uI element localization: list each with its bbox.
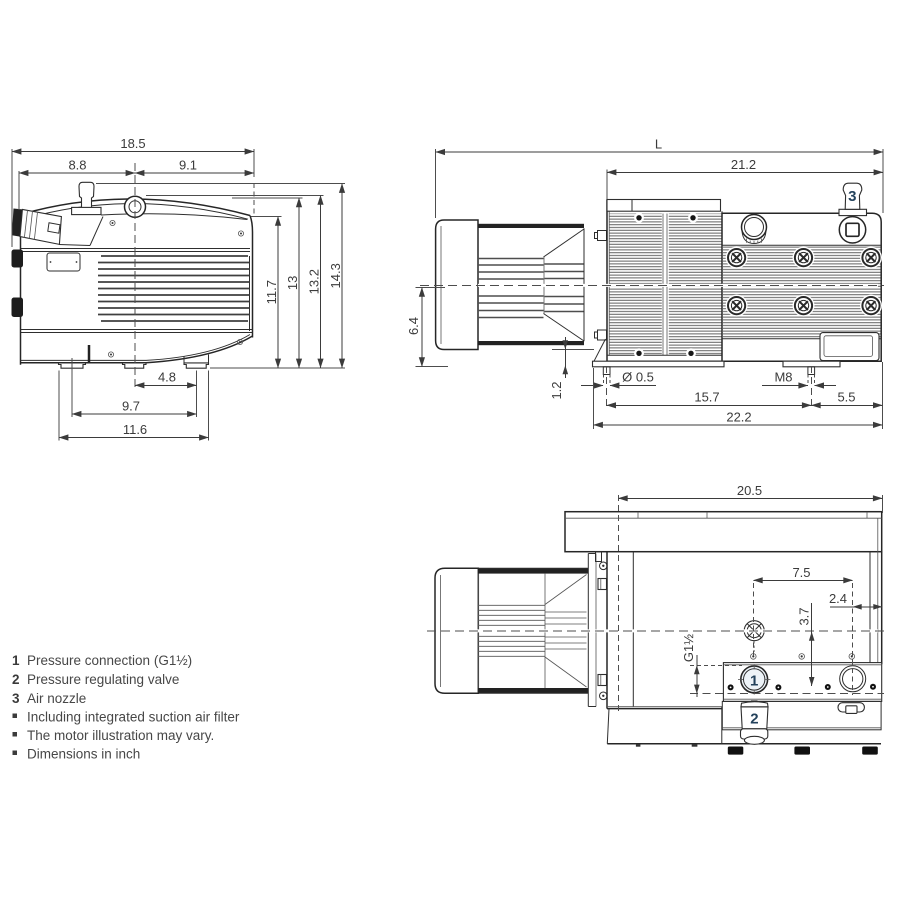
- svg-text:2.4: 2.4: [829, 591, 847, 606]
- svg-text:9.7: 9.7: [122, 399, 140, 414]
- svg-text:8.8: 8.8: [68, 158, 86, 173]
- svg-text:Dimensions in inch: Dimensions in inch: [27, 747, 140, 762]
- svg-text:3: 3: [12, 691, 20, 706]
- svg-text:1: 1: [12, 653, 20, 668]
- svg-text:11.7: 11.7: [264, 280, 279, 304]
- svg-text:22.2: 22.2: [726, 409, 751, 424]
- svg-text:Pressure connection (G1½): Pressure connection (G1½): [27, 653, 192, 668]
- svg-text:Pressure regulating valve: Pressure regulating valve: [27, 672, 179, 687]
- svg-text:5.5: 5.5: [837, 389, 855, 404]
- svg-text:G1½: G1½: [681, 634, 696, 662]
- svg-text:3: 3: [848, 188, 856, 205]
- svg-text:18.5: 18.5: [120, 136, 145, 151]
- svg-text:13.2: 13.2: [306, 269, 321, 294]
- svg-text:6.4: 6.4: [406, 317, 421, 335]
- svg-text:2: 2: [750, 710, 758, 727]
- svg-text:The motor illustration may var: The motor illustration may vary.: [27, 728, 214, 743]
- svg-text:L: L: [655, 137, 662, 152]
- svg-text:11.6: 11.6: [123, 422, 147, 437]
- svg-text:Ø 0.5: Ø 0.5: [622, 369, 654, 384]
- svg-text:1.2: 1.2: [549, 381, 564, 399]
- svg-text:Including integrated suction a: Including integrated suction air filter: [27, 710, 240, 725]
- svg-text:20.5: 20.5: [737, 483, 762, 498]
- svg-text:15.7: 15.7: [694, 389, 719, 404]
- svg-text:21.2: 21.2: [731, 157, 756, 172]
- svg-text:Air nozzle: Air nozzle: [27, 691, 86, 706]
- svg-text:3.7: 3.7: [796, 607, 811, 625]
- svg-text:14.3: 14.3: [328, 263, 343, 288]
- svg-text:M8: M8: [774, 369, 792, 384]
- svg-text:13: 13: [285, 276, 300, 290]
- svg-text:4.8: 4.8: [158, 370, 176, 385]
- svg-text:9.1: 9.1: [179, 158, 197, 173]
- svg-text:1: 1: [750, 672, 758, 689]
- svg-text:7.5: 7.5: [792, 565, 810, 580]
- svg-text:2: 2: [12, 672, 20, 687]
